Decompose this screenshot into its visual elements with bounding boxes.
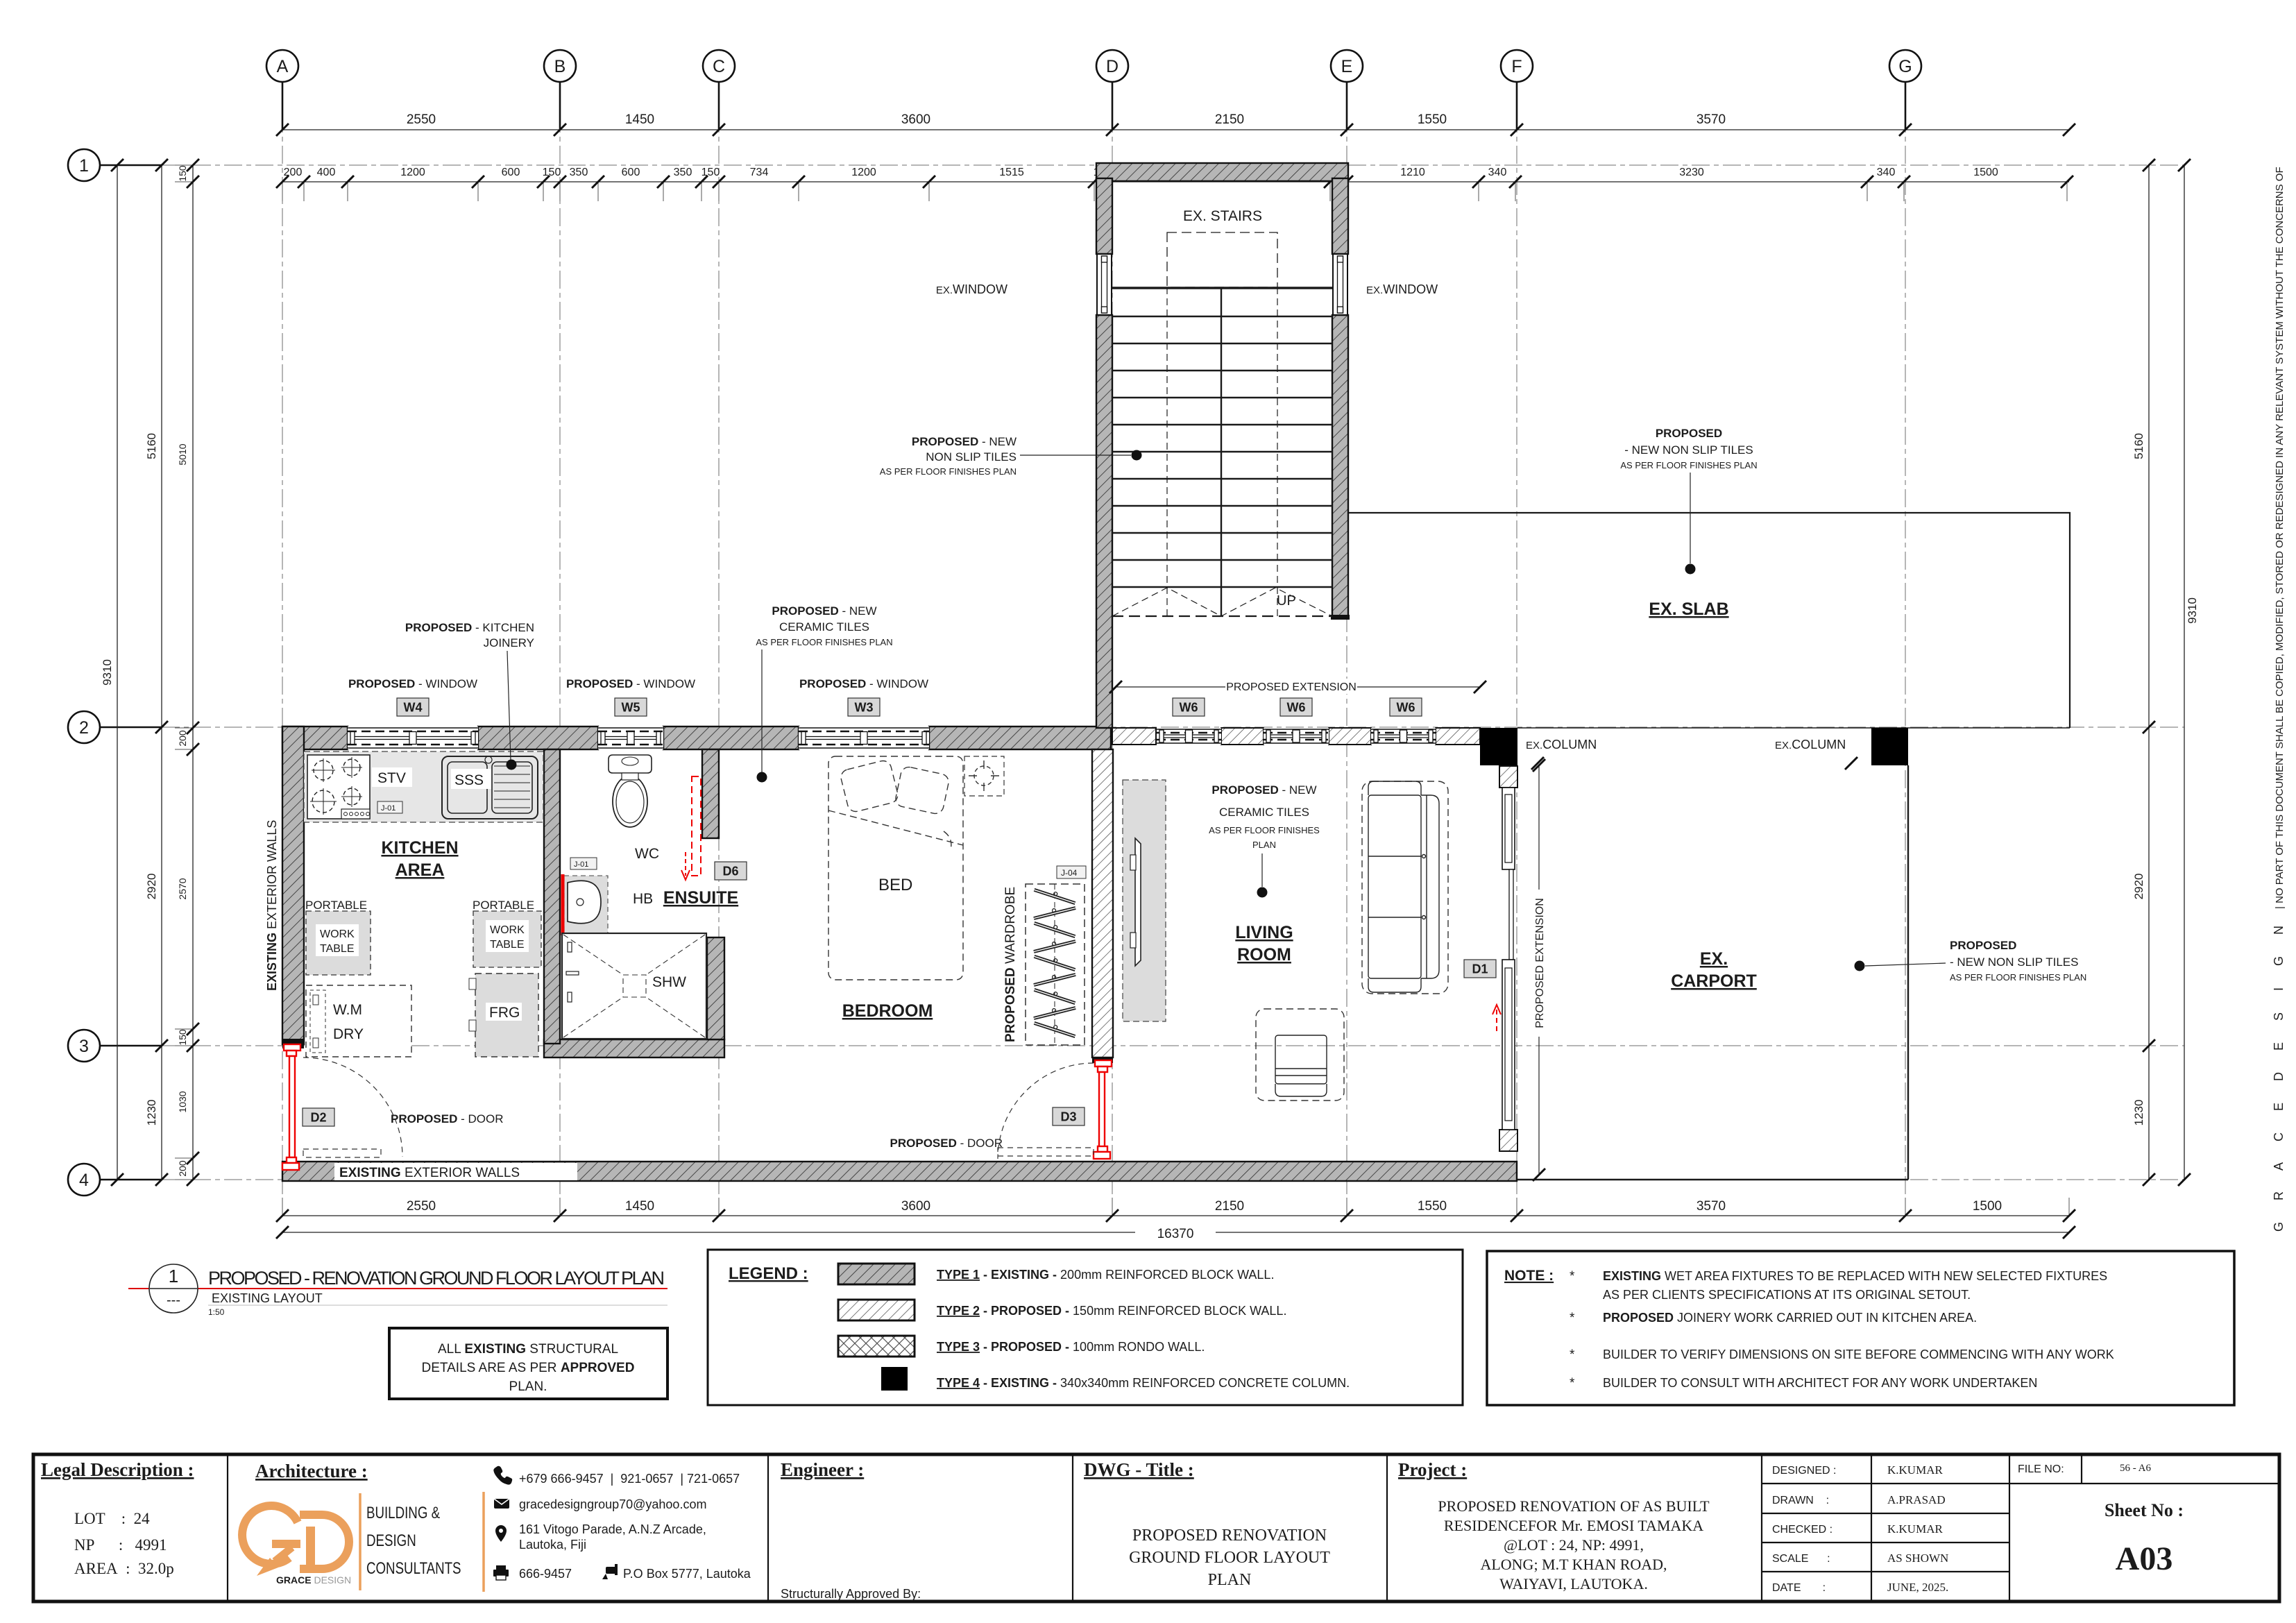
svg-text:150: 150	[177, 1029, 188, 1046]
svg-text:E: E	[1341, 57, 1353, 76]
svg-text:AS PER FLOOR FINISHES PLAN: AS PER FLOOR FINISHES PLAN	[1620, 460, 1757, 470]
svg-text:J-01: J-01	[574, 860, 588, 869]
svg-text:2: 2	[79, 718, 89, 738]
svg-text:EXISTING EXTERIOR WALLS: EXISTING EXTERIOR WALLS	[265, 820, 279, 991]
svg-text:4: 4	[79, 1171, 89, 1190]
svg-text:P.O Box 5777, Lautoka: P.O Box 5777, Lautoka	[623, 1567, 751, 1581]
svg-text:3600: 3600	[901, 112, 930, 127]
svg-text:KITCHEN: KITCHEN	[381, 838, 458, 858]
svg-text:Legal Description :: Legal Description :	[41, 1459, 194, 1480]
svg-text:JOINERY: JOINERY	[484, 636, 534, 649]
svg-text:PROPOSED - KITCHEN: PROPOSED - KITCHEN	[405, 621, 534, 634]
svg-text:1230: 1230	[2132, 1100, 2145, 1126]
svg-text:EXISTING LAYOUT: EXISTING LAYOUT	[212, 1291, 323, 1305]
svg-text:2920: 2920	[2132, 874, 2145, 900]
svg-text:1550: 1550	[1418, 1199, 1447, 1214]
svg-text:W6: W6	[1287, 700, 1306, 714]
svg-text:1200: 1200	[400, 167, 425, 178]
svg-text:*: *	[1570, 1348, 1575, 1362]
svg-text:PROPOSED - NEW: PROPOSED - NEW	[1211, 783, 1316, 797]
svg-text:- NEW NON SLIP TILES: - NEW NON SLIP TILES	[1950, 955, 2078, 969]
svg-text:PLAN: PLAN	[1252, 840, 1276, 850]
svg-text:350: 350	[674, 167, 692, 178]
svg-text:3: 3	[79, 1037, 89, 1056]
svg-text:AS PER FLOOR FINISHES PLAN: AS PER FLOOR FINISHES PLAN	[880, 466, 1017, 477]
svg-text:5010: 5010	[177, 443, 188, 465]
svg-text:LOT : 24: LOT : 24	[74, 1510, 150, 1527]
svg-text:*: *	[1570, 1269, 1575, 1284]
svg-text:W3: W3	[855, 700, 874, 714]
svg-text:CERAMIC TILES: CERAMIC TILES	[1219, 806, 1309, 819]
svg-text:---: ---	[167, 1293, 180, 1308]
svg-text:734: 734	[750, 167, 769, 178]
svg-text:D6: D6	[722, 864, 738, 878]
svg-text:1500: 1500	[1973, 167, 1998, 178]
svg-text:@LOT : 24, NP: 4991,: @LOT : 24, NP: 4991,	[1504, 1536, 1644, 1554]
svg-text:PROPOSED JOINERY WORK CARRIED: PROPOSED JOINERY WORK CARRIED OUT IN KIT…	[1603, 1311, 1977, 1325]
svg-text:2550: 2550	[407, 112, 436, 127]
svg-text:PROPOSED EXTENSION: PROPOSED EXTENSION	[1534, 898, 1546, 1028]
svg-text:150: 150	[177, 165, 188, 182]
svg-text:PORTABLE: PORTABLE	[473, 899, 534, 912]
svg-text:AS PER CLIENTS SPECIFICATIONS: AS PER CLIENTS SPECIFICATIONS AT ITS ORI…	[1603, 1288, 1971, 1302]
svg-text:PROPOSED RENOVATION OF AS BUIL: PROPOSED RENOVATION OF AS BUILT	[1438, 1497, 1710, 1515]
svg-text:A.PRASAD: A.PRASAD	[1887, 1493, 1946, 1506]
svg-text:K.KUMAR: K.KUMAR	[1887, 1522, 1943, 1536]
svg-text:DWG - Title :: DWG - Title :	[1084, 1459, 1194, 1480]
svg-text:BEDROOM: BEDROOM	[842, 1001, 933, 1021]
svg-text:GROUND FLOOR LAYOUT: GROUND FLOOR LAYOUT	[1129, 1549, 1330, 1567]
svg-text:DATE :: DATE :	[1772, 1582, 1826, 1594]
svg-text:A03: A03	[2116, 1540, 2173, 1577]
svg-text:200: 200	[177, 1160, 188, 1177]
svg-text:DESIGN: DESIGN	[366, 1531, 416, 1550]
svg-text:Lautoka, Fiji: Lautoka, Fiji	[519, 1538, 586, 1552]
svg-text:EX.COLUMN: EX.COLUMN	[1526, 738, 1597, 751]
svg-text:TYPE 1 - EXISTING - 200mm REI: TYPE 1 - EXISTING - 200mm REINFORCED BLO…	[937, 1268, 1274, 1282]
svg-text:PLAN: PLAN	[1208, 1571, 1252, 1589]
svg-text:1:50: 1:50	[208, 1307, 225, 1317]
svg-text:FILE NO:: FILE NO:	[2018, 1463, 2064, 1475]
svg-text:W.M: W.M	[333, 1002, 362, 1018]
svg-text:Project :: Project :	[1398, 1459, 1467, 1480]
svg-text:PROPOSED - NEW: PROPOSED - NEW	[772, 604, 876, 618]
svg-text:WORK: WORK	[490, 924, 525, 936]
svg-text:9310: 9310	[2186, 597, 2199, 624]
svg-text:AS PER FLOOR FINISHES: AS PER FLOOR FINISHES	[1209, 825, 1320, 835]
svg-text:SCALE :: SCALE :	[1772, 1553, 1830, 1565]
svg-text:PROPOSED WARDROBE: PROPOSED WARDROBE	[1003, 887, 1018, 1042]
svg-text:DRY: DRY	[333, 1026, 364, 1042]
svg-text:AREA : 32.0p: AREA : 32.0p	[74, 1560, 174, 1577]
svg-text:CHECKED :: CHECKED :	[1772, 1524, 1832, 1536]
svg-text:W6: W6	[1397, 700, 1415, 714]
svg-text:gracedesigngroup70@yahoo.com: gracedesigngroup70@yahoo.com	[519, 1497, 706, 1511]
svg-text:1450: 1450	[625, 1199, 654, 1214]
svg-text:600: 600	[502, 167, 520, 178]
svg-text:1210: 1210	[1400, 167, 1425, 178]
svg-text:PROPOSED - DOOR: PROPOSED - DOOR	[391, 1112, 503, 1125]
svg-text:EX. SLAB: EX. SLAB	[1649, 600, 1728, 619]
svg-text:*: *	[1570, 1311, 1575, 1325]
svg-text:W6: W6	[1180, 700, 1198, 714]
svg-text:GRACE DESIGN: GRACE DESIGN	[276, 1574, 351, 1586]
svg-text:1: 1	[169, 1266, 178, 1286]
svg-text:G R A C E D E S I G N: G R A C E D E S I G N	[2272, 917, 2286, 1232]
svg-text:EXISTING EXTERIOR WALLS: EXISTING EXTERIOR WALLS	[339, 1166, 520, 1180]
svg-text:3600: 3600	[901, 1199, 930, 1214]
svg-text:TYPE 4 - EXISTING - 340x340mm: TYPE 4 - EXISTING - 340x340mm REINFORCED…	[937, 1376, 1350, 1390]
svg-text:D: D	[1106, 57, 1119, 76]
svg-text:BUILDING &: BUILDING &	[366, 1504, 441, 1522]
svg-text:STV: STV	[377, 770, 406, 786]
svg-text:HB: HB	[633, 891, 653, 907]
svg-text:PROPOSED RENOVATION: PROPOSED RENOVATION	[1132, 1527, 1327, 1545]
svg-text:CARPORT: CARPORT	[1671, 971, 1757, 991]
svg-text:D1: D1	[1472, 962, 1488, 976]
svg-text:C: C	[713, 57, 725, 76]
svg-text:1515: 1515	[999, 167, 1024, 178]
svg-text:1: 1	[79, 156, 89, 176]
svg-text:PROPOSED - WINDOW: PROPOSED - WINDOW	[348, 677, 477, 690]
svg-text:CERAMIC TILES: CERAMIC TILES	[779, 620, 869, 634]
svg-text:5160: 5160	[145, 433, 158, 459]
svg-text:NON SLIP TILES: NON SLIP TILES	[926, 450, 1017, 464]
svg-text:WC: WC	[635, 846, 659, 862]
svg-text:TYPE 3 - PROPOSED - 100mm RON: TYPE 3 - PROPOSED - 100mm RONDO WALL.	[937, 1340, 1205, 1354]
svg-text:Architecture :: Architecture :	[255, 1461, 368, 1481]
svg-text:ROOM: ROOM	[1237, 945, 1291, 965]
svg-text:PROPOSED: PROPOSED	[1656, 427, 1722, 440]
svg-text:J-01: J-01	[381, 804, 396, 813]
svg-text:Sheet No :: Sheet No :	[2104, 1500, 2184, 1520]
svg-text:- NEW NON SLIP TILES: - NEW NON SLIP TILES	[1624, 443, 1753, 457]
svg-text:Structurally Approved By:: Structurally Approved By:	[781, 1587, 921, 1601]
svg-text:EX.: EX.	[1700, 949, 1728, 969]
svg-text:EX.WINDOW: EX.WINDOW	[1366, 282, 1438, 296]
svg-text:PROPOSED - NEW: PROPOSED - NEW	[912, 435, 1017, 448]
svg-text:2570: 2570	[177, 878, 188, 899]
svg-text:ALONG; M.T KHAN ROAD,: ALONG; M.T KHAN ROAD,	[1480, 1556, 1667, 1573]
svg-text:200: 200	[177, 730, 188, 747]
svg-text:PROPOSED - RENOVATION GROUND F: PROPOSED - RENOVATION GROUND FLOOR LAYOU…	[208, 1268, 665, 1289]
svg-text:D2: D2	[310, 1110, 326, 1124]
svg-text:2150: 2150	[1215, 112, 1244, 127]
svg-text:ENSUITE: ENSUITE	[663, 888, 738, 908]
svg-text:SHW: SHW	[652, 974, 686, 990]
svg-text:| NO PART OF THIS DOCUMENT S: | NO PART OF THIS DOCUMENT SHALL BE COPI…	[2274, 167, 2286, 909]
svg-text:G: G	[1898, 57, 1912, 76]
svg-text:NOTE :: NOTE :	[1504, 1268, 1554, 1284]
svg-text:150: 150	[543, 167, 561, 178]
svg-text:BUILDER TO CONSULT WITH ARCHIT: BUILDER TO CONSULT WITH ARCHITECT FOR AN…	[1603, 1376, 2037, 1390]
svg-text:CONSULTANTS: CONSULTANTS	[366, 1559, 461, 1578]
svg-text:PROPOSED EXTENSION: PROPOSED EXTENSION	[1226, 681, 1357, 693]
svg-text:BED: BED	[878, 876, 912, 894]
svg-text:2920: 2920	[145, 874, 158, 900]
svg-text:EX.WINDOW: EX.WINDOW	[936, 282, 1007, 296]
svg-text:600: 600	[622, 167, 640, 178]
svg-text:5160: 5160	[2132, 433, 2145, 459]
svg-text:200: 200	[284, 167, 303, 178]
svg-text:340: 340	[1488, 167, 1507, 178]
svg-text:PROPOSED - DOOR: PROPOSED - DOOR	[890, 1137, 1003, 1150]
svg-text:1030: 1030	[177, 1091, 188, 1112]
svg-text:1550: 1550	[1418, 112, 1447, 127]
svg-text:PROPOSED - WINDOW: PROPOSED - WINDOW	[799, 677, 928, 690]
svg-text:340: 340	[1877, 167, 1896, 178]
svg-text:EXISTING WET AREA FIXTURES TO: EXISTING WET AREA FIXTURES TO BE REPLACE…	[1603, 1269, 2107, 1283]
svg-text:350: 350	[570, 167, 588, 178]
svg-text:DETAILS ARE AS PER APPROVED: DETAILS ARE AS PER APPROVED	[422, 1361, 635, 1375]
svg-text:AS SHOWN: AS SHOWN	[1887, 1552, 1948, 1565]
svg-text:2150: 2150	[1215, 1199, 1244, 1214]
svg-text:WORK: WORK	[320, 928, 355, 940]
svg-text:16370: 16370	[1157, 1227, 1194, 1241]
svg-text:*: *	[1570, 1376, 1575, 1391]
svg-text:B: B	[554, 57, 566, 76]
svg-text:150: 150	[701, 167, 720, 178]
svg-text:3570: 3570	[1697, 1199, 1726, 1214]
svg-text:NP : 4991: NP : 4991	[74, 1536, 167, 1554]
svg-text:J-04: J-04	[1061, 868, 1078, 878]
svg-text:1200: 1200	[851, 167, 876, 178]
svg-text:RESIDENCEFOR Mr. EMOSI TAMAKA: RESIDENCEFOR Mr. EMOSI TAMAKA	[1444, 1517, 1703, 1534]
svg-text:DRAWN :: DRAWN :	[1772, 1495, 1829, 1506]
svg-text:PLAN.: PLAN.	[509, 1379, 547, 1394]
svg-text:400: 400	[317, 167, 336, 178]
svg-text:JUNE, 2025.: JUNE, 2025.	[1887, 1581, 1948, 1594]
svg-text:1230: 1230	[145, 1100, 158, 1126]
svg-text:Engineer :: Engineer :	[781, 1459, 864, 1480]
svg-text:AREA: AREA	[396, 860, 445, 880]
svg-text:161 Vitogo Parade, A.N.Z Arcad: 161 Vitogo Parade, A.N.Z Arcade,	[519, 1522, 706, 1536]
svg-text:ALL EXISTING STRUCTURAL: ALL EXISTING STRUCTURAL	[438, 1342, 618, 1357]
svg-text:BUILDER TO VERIFY DIMENSIONS O: BUILDER TO VERIFY DIMENSIONS ON SITE BEF…	[1603, 1348, 2114, 1361]
svg-text:AS PER FLOOR FINISHES PLAN: AS PER FLOOR FINISHES PLAN	[1950, 972, 2086, 983]
svg-text:LIVING: LIVING	[1235, 923, 1293, 942]
svg-text:1500: 1500	[1973, 1199, 2002, 1214]
svg-text:LEGEND :: LEGEND :	[729, 1264, 808, 1283]
svg-text:TABLE: TABLE	[320, 943, 355, 955]
svg-text:+679 666-9457 | 921-0657 |: +679 666-9457 | 921-0657 | 721-0657	[519, 1472, 740, 1486]
svg-text:2550: 2550	[407, 1199, 436, 1214]
svg-text:W5: W5	[622, 700, 640, 714]
svg-text:PORTABLE: PORTABLE	[305, 899, 367, 912]
svg-text:TABLE: TABLE	[490, 939, 525, 951]
svg-text:PROPOSED - WINDOW: PROPOSED - WINDOW	[566, 677, 695, 690]
svg-text:EX. STAIRS: EX. STAIRS	[1183, 208, 1262, 224]
svg-text:AS PER FLOOR FINISHES PLAN: AS PER FLOOR FINISHES PLAN	[756, 637, 892, 647]
svg-text:TYPE 2 - PROPOSED - 150mm REI: TYPE 2 - PROPOSED - 150mm REINFORCED BLO…	[937, 1304, 1286, 1318]
svg-text:WAIYAVI, LAUTOKA.: WAIYAVI, LAUTOKA.	[1499, 1575, 1648, 1592]
svg-text:PROPOSED: PROPOSED	[1950, 939, 2016, 952]
svg-text:SSS: SSS	[454, 772, 484, 788]
svg-text:DESIGNED :: DESIGNED :	[1772, 1465, 1836, 1477]
svg-text:F: F	[1511, 57, 1522, 76]
svg-text:666-9457: 666-9457	[519, 1567, 572, 1581]
svg-text:EX.COLUMN: EX.COLUMN	[1775, 738, 1846, 751]
svg-text:K.KUMAR: K.KUMAR	[1887, 1463, 1943, 1477]
svg-text:A: A	[277, 57, 289, 76]
svg-text:56 - A6: 56 - A6	[2120, 1463, 2152, 1474]
svg-text:3570: 3570	[1697, 112, 1726, 127]
svg-text:UP: UP	[1277, 593, 1296, 609]
svg-text:1450: 1450	[625, 112, 654, 127]
svg-text:3230: 3230	[1679, 167, 1704, 178]
svg-text:D3: D3	[1060, 1110, 1076, 1123]
svg-text:W4: W4	[404, 700, 423, 714]
svg-text:FRG: FRG	[489, 1005, 520, 1021]
svg-text:9310: 9310	[101, 659, 114, 686]
